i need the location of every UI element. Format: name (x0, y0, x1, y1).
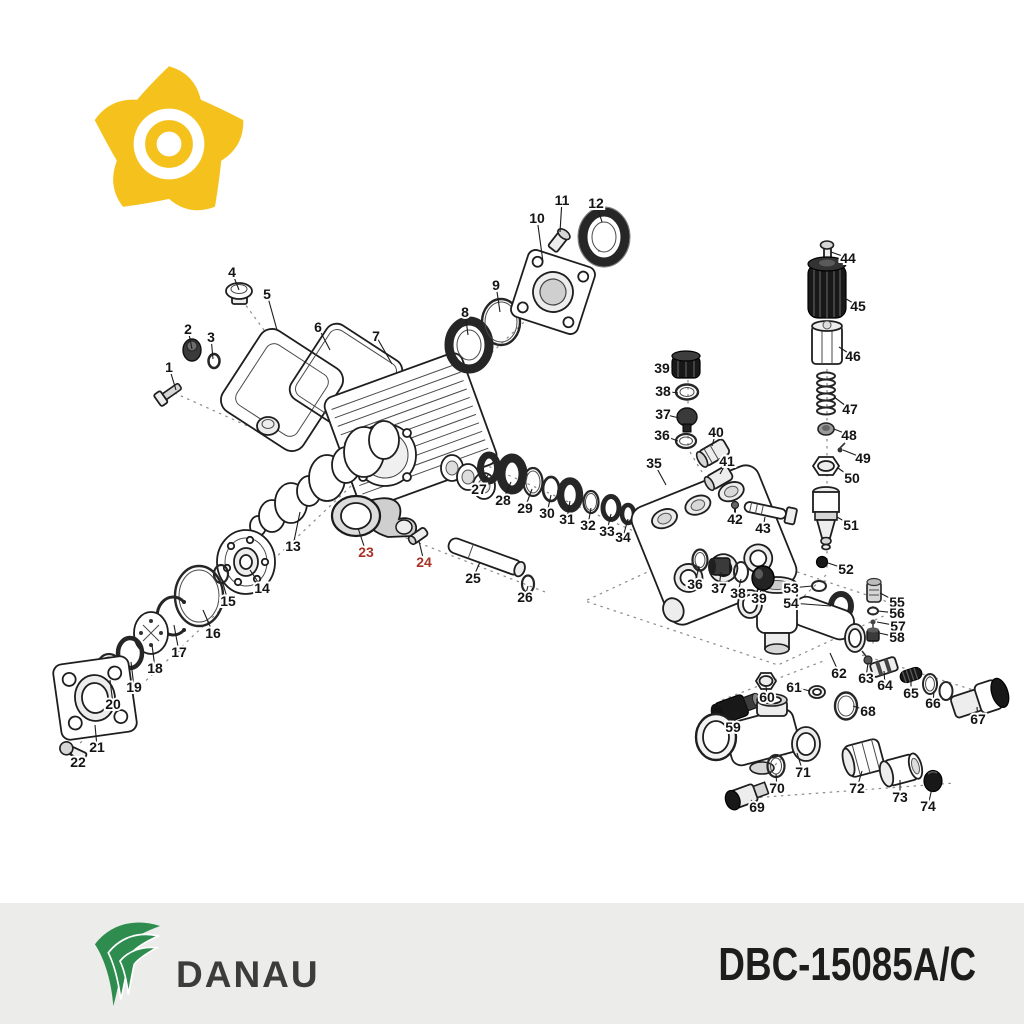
part-hex-ring-50 (813, 457, 839, 475)
part-number-37: 37 (655, 406, 671, 422)
part-number-41: 41 (719, 453, 735, 469)
part-number-8: 8 (461, 304, 469, 320)
part-number-71: 71 (795, 764, 811, 780)
part-number-66: 66 (925, 695, 941, 711)
part-number-67: 67 (970, 711, 986, 727)
part-number-2: 2 (184, 321, 192, 337)
exploded-diagram: 1234567891011121314151617181920212223242… (0, 0, 1024, 903)
model-number: DBC-15085A/C (718, 937, 976, 991)
part-number-43: 43 (755, 520, 771, 536)
part-number-64: 64 (877, 677, 893, 693)
part-cylinder-73 (877, 752, 924, 788)
part-pin-57 (871, 620, 876, 629)
part-number-42: 42 (727, 511, 743, 527)
part-number-45: 45 (850, 298, 866, 314)
part-number-10: 10 (529, 210, 545, 226)
part-number-33: 33 (599, 523, 615, 539)
part-number-38: 38 (730, 585, 746, 601)
part-number-11: 11 (555, 192, 570, 208)
part-number-36: 36 (687, 576, 703, 592)
part-number-22: 22 (70, 754, 86, 770)
part-oring-70 (768, 755, 785, 777)
brand-lockup: DANAU (88, 916, 320, 1012)
part-number-72: 72 (849, 780, 865, 796)
part-number-58: 58 (889, 629, 905, 645)
part-number-40: 40 (708, 424, 724, 440)
part-cover-5 (216, 324, 349, 457)
part-number-59: 59 (725, 719, 741, 735)
part-number-16: 16 (205, 625, 221, 641)
part-spring-47 (817, 373, 835, 415)
part-nut-48 (818, 423, 834, 435)
part-number-31: 31 (559, 511, 575, 527)
part-number-70: 70 (769, 780, 785, 796)
part-number-20: 20 (105, 696, 121, 712)
part-number-68: 68 (860, 703, 876, 719)
part-number-12: 12 (588, 195, 604, 211)
part-number-65: 65 (903, 685, 919, 701)
part-number-5: 5 (263, 286, 271, 302)
part-cap-4 (226, 283, 252, 304)
part-number-39: 39 (654, 360, 670, 376)
part-number-4: 4 (228, 264, 236, 280)
part-seal-stack (481, 455, 635, 523)
part-number-35: 35 (646, 455, 662, 471)
part-number-73: 73 (892, 789, 908, 805)
part-number-62: 62 (831, 665, 847, 681)
part-number-38: 38 (655, 383, 671, 399)
part-number-15: 15 (220, 593, 236, 609)
part-knob-45 (808, 257, 846, 318)
part-number-13: 13 (285, 538, 301, 554)
part-number-30: 30 (539, 505, 555, 521)
part-number-44: 44 (840, 250, 856, 266)
part-number-34: 34 (615, 529, 631, 545)
part-number-18: 18 (147, 660, 163, 676)
part-number-28: 28 (495, 492, 511, 508)
part-number-37: 37 (711, 580, 727, 596)
part-number-24: 24 (416, 554, 432, 570)
part-number-6: 6 (314, 319, 322, 335)
part-ball-52 (817, 557, 828, 568)
part-oring-16 (175, 566, 223, 626)
part-number-51: 51 (843, 517, 859, 533)
part-number-61: 61 (786, 679, 802, 695)
part-plug-2 (183, 339, 201, 361)
part-number-69: 69 (749, 799, 765, 815)
part-hex-body-46 (812, 321, 842, 364)
part-number-60: 60 (759, 689, 775, 705)
part-valve-51 (813, 487, 839, 550)
part-number-74: 74 (920, 798, 936, 814)
part-ball-63 (862, 651, 872, 664)
part-washer-3 (209, 354, 220, 368)
part-number-21: 21 (89, 739, 105, 755)
part-fitting-55 (867, 579, 881, 603)
part-number-19: 19 (126, 679, 142, 695)
part-plug-58 (867, 628, 879, 642)
part-number-52: 52 (838, 561, 854, 577)
part-connecting-rod-23 (332, 496, 416, 537)
part-number-53: 53 (783, 580, 799, 596)
part-number-47: 47 (842, 401, 858, 417)
part-number-63: 63 (858, 670, 874, 686)
part-bolt-11 (547, 227, 572, 254)
part-number-27: 27 (471, 481, 487, 497)
part-washer-61 (809, 686, 825, 698)
part-number-29: 29 (517, 500, 533, 516)
part-number-36: 36 (654, 427, 670, 443)
part-number-3: 3 (207, 329, 215, 345)
part-number-14: 14 (254, 580, 270, 596)
part-number-49: 49 (855, 450, 871, 466)
danau-logo (88, 916, 172, 1012)
page: 1234567891011121314151617181920212223242… (0, 0, 1024, 1024)
brand-name: DANAU (176, 954, 320, 996)
part-flange-10 (509, 248, 597, 336)
part-plunger-25 (447, 536, 527, 577)
part-number-7: 7 (372, 328, 380, 344)
part-number-46: 46 (845, 348, 861, 364)
part-cap-74 (924, 771, 942, 792)
part-number-48: 48 (841, 427, 857, 443)
part-number-26: 26 (517, 589, 533, 605)
part-number-50: 50 (844, 470, 860, 486)
part-number-32: 32 (580, 517, 596, 533)
part-hexnut-72 (840, 738, 886, 779)
part-bolt-1 (153, 380, 183, 407)
part-number-9: 9 (492, 277, 500, 293)
part-number-54: 54 (783, 595, 799, 611)
part-number-25: 25 (465, 570, 481, 586)
part-number-17: 17 (171, 644, 187, 660)
part-pin-49 (838, 443, 846, 453)
footer-bar: DANAU DBC-15085A/C (0, 903, 1024, 1024)
part-number-23: 23 (358, 544, 374, 560)
part-valve-set-top (672, 351, 700, 448)
part-number-1: 1 (165, 359, 173, 375)
part-seal-12 (578, 207, 630, 267)
part-number-39: 39 (751, 590, 767, 606)
